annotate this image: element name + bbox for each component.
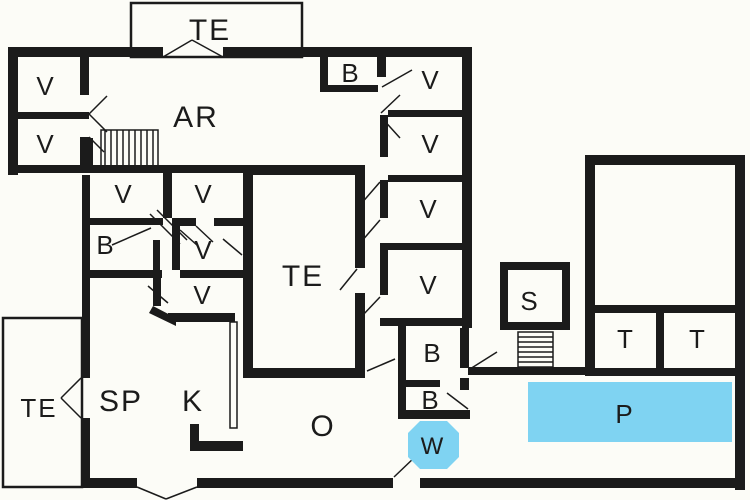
room-label-te-inner: TE — [282, 260, 324, 293]
room-label-te-patio: TE — [20, 393, 57, 423]
wall — [86, 138, 93, 165]
room-label-w: W — [421, 433, 446, 460]
wall — [82, 478, 137, 488]
wall — [214, 218, 243, 226]
floor-plan: TE V V AR B V V V V V V B V V TE TE SP K… — [0, 0, 750, 500]
wall — [388, 110, 464, 117]
room-label-v-right-3: V — [419, 194, 438, 224]
room-label-t-right: T — [689, 324, 707, 354]
wall — [380, 318, 464, 326]
wall — [462, 47, 472, 328]
wall — [8, 47, 163, 57]
wall — [388, 243, 464, 250]
kitchen-counter — [190, 424, 199, 451]
room-label-b-top: B — [341, 58, 360, 88]
wall — [8, 47, 18, 175]
wall — [80, 112, 89, 119]
room-label-k: K — [182, 385, 204, 418]
wall — [223, 47, 472, 57]
room-label-te-balcony: TE — [189, 14, 231, 47]
wall — [585, 368, 735, 376]
wall — [243, 368, 365, 378]
wall — [82, 175, 90, 378]
wall — [8, 165, 243, 173]
room-label-v-right-1: V — [421, 65, 440, 95]
wall — [18, 112, 82, 119]
wall — [163, 173, 172, 218]
room-label-v-mid-4: V — [193, 280, 212, 310]
room-label-p: P — [615, 399, 634, 429]
wall — [243, 165, 253, 378]
wall — [420, 478, 745, 488]
wall — [180, 270, 243, 278]
room-label-v-right-4: V — [419, 270, 438, 300]
wall — [377, 57, 386, 77]
wall — [460, 378, 469, 390]
wall — [468, 367, 595, 375]
wall — [656, 313, 664, 370]
wall — [585, 155, 595, 373]
room-label-sp: SP — [99, 385, 143, 418]
room-label-t-left: T — [617, 324, 635, 354]
room-label-v-left-top: V — [36, 71, 55, 101]
wall — [355, 293, 365, 378]
wall — [398, 326, 406, 418]
room-label-b-mid: B — [96, 230, 115, 260]
room-label-ar: AR — [173, 101, 219, 134]
wall — [90, 270, 162, 278]
wall — [168, 313, 235, 322]
wall — [380, 180, 388, 218]
room-label-v-mid-3: V — [194, 235, 213, 265]
wall — [80, 57, 89, 95]
room-label-v-left-bottom: V — [36, 129, 55, 159]
room-label-v-right-2: V — [421, 129, 440, 159]
wall — [735, 155, 745, 490]
wall — [593, 305, 735, 313]
wall — [585, 155, 745, 165]
wall — [197, 478, 393, 488]
wall — [388, 175, 464, 182]
room-label-o: O — [310, 410, 335, 443]
wall — [460, 328, 469, 368]
wall — [82, 418, 90, 478]
wall — [320, 57, 328, 85]
wall — [253, 165, 365, 175]
room-label-s: S — [520, 286, 539, 316]
room-label-b-right-2: B — [421, 385, 440, 415]
room-label-v-mid-right: V — [194, 179, 213, 209]
wall — [355, 165, 365, 268]
wall — [380, 243, 388, 295]
wall — [172, 218, 196, 226]
room-label-b-right-1: B — [423, 338, 442, 368]
wall — [153, 240, 160, 270]
room-label-v-mid-left: V — [114, 179, 133, 209]
wall — [90, 218, 163, 225]
